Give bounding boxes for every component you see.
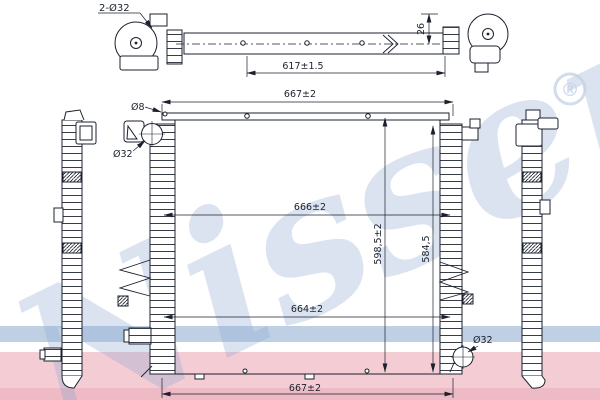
depth-dim-label: 26 [416,23,427,35]
watermark-layer: Nissens ® [0,0,600,400]
overall-height-label: 598,5±2 [373,223,384,264]
lower-width-label: 664±2 [291,304,323,315]
overall-width-top-label: 667±2 [284,89,316,100]
core-width-label: 666±2 [294,202,326,213]
pin-dia-label: Ø8 [131,102,145,113]
outlet-dia-label: Ø32 [473,335,493,346]
inlet-dia-label: Ø32 [113,149,133,160]
holes-callout-label: 2-Ø32 [99,2,130,14]
mount-length-dim-label: 617±1.5 [282,61,323,72]
overall-width-bottom-label: 667±2 [289,383,321,394]
core-height-label: 584,5 [421,235,432,262]
radiator-technical-drawing: Nissens ® 2-Ø32 26 [0,0,600,400]
svg-text:®: ® [561,79,580,101]
